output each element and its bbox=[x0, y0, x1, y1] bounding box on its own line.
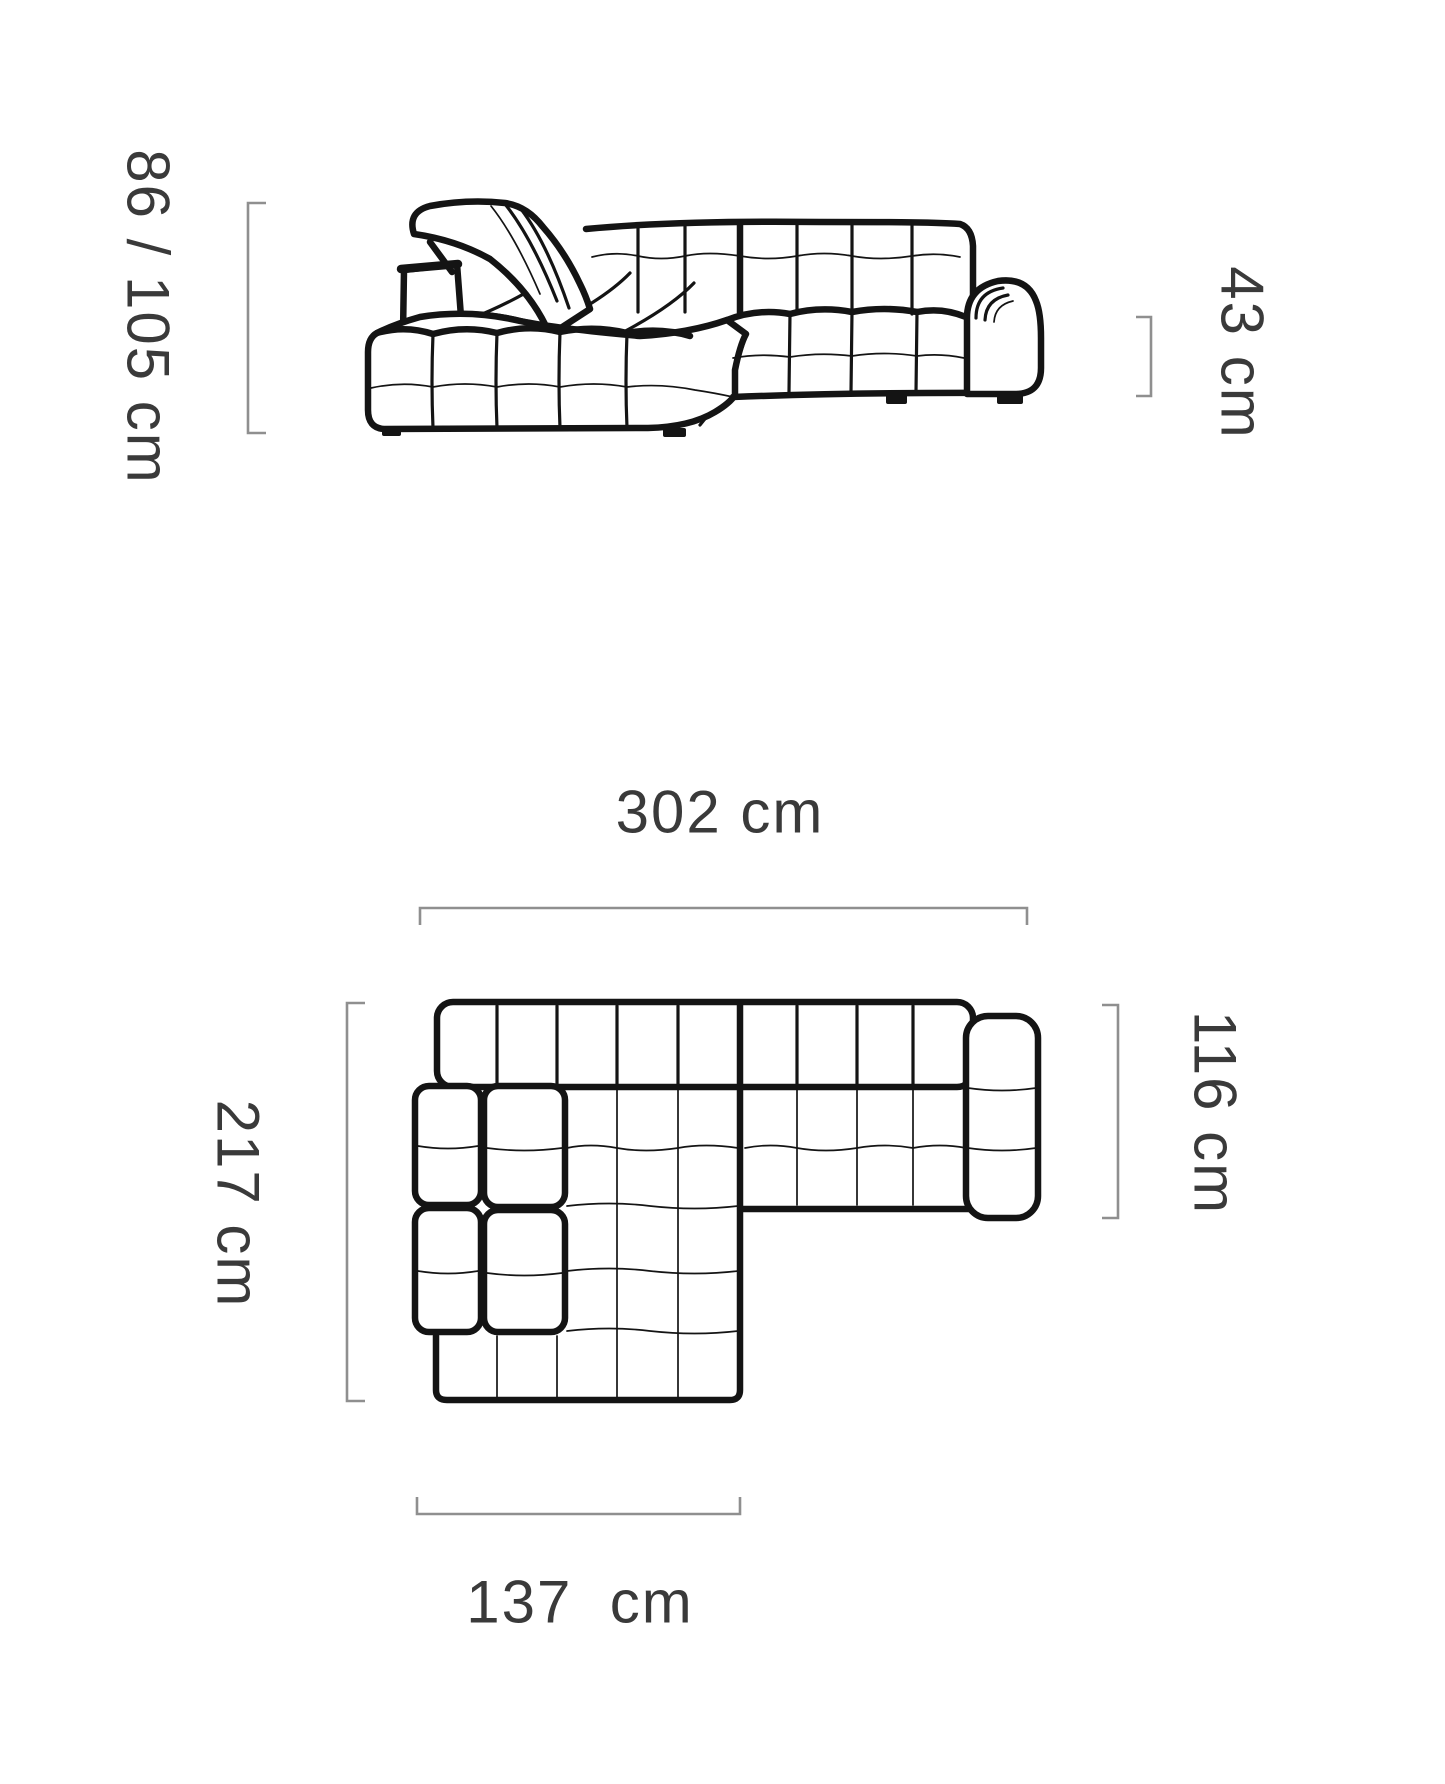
height-label: 86 / 105 cm bbox=[114, 149, 183, 485]
front-chaise-cushions bbox=[368, 314, 746, 429]
depth-bracket bbox=[347, 1003, 365, 1401]
height-bracket bbox=[248, 203, 266, 433]
dimension-diagram: 86 / 105 cm 43 cm 302 cm 217 cm 116 cm 1… bbox=[0, 0, 1445, 1784]
top-chaise-cushions bbox=[415, 1086, 565, 1332]
front-view-sofa bbox=[368, 202, 1041, 437]
top-backrest bbox=[437, 1002, 973, 1087]
front-backrest bbox=[586, 222, 973, 314]
seat-height-label: 43 cm bbox=[1208, 266, 1277, 439]
chaise-width-bracket bbox=[417, 1497, 740, 1514]
chaise-width-label: 137 cm bbox=[466, 1568, 693, 1637]
seat-height-bracket bbox=[1136, 317, 1151, 396]
top-arm bbox=[966, 1016, 1038, 1218]
depth-label: 217 cm bbox=[204, 1100, 273, 1309]
width-label: 302 cm bbox=[616, 778, 825, 847]
front-arm bbox=[967, 280, 1041, 394]
width-bracket bbox=[420, 908, 1027, 925]
body-depth-bracket bbox=[1102, 1005, 1118, 1218]
body-depth-label: 116 cm bbox=[1181, 1011, 1250, 1215]
top-view-sofa bbox=[415, 1002, 1038, 1400]
